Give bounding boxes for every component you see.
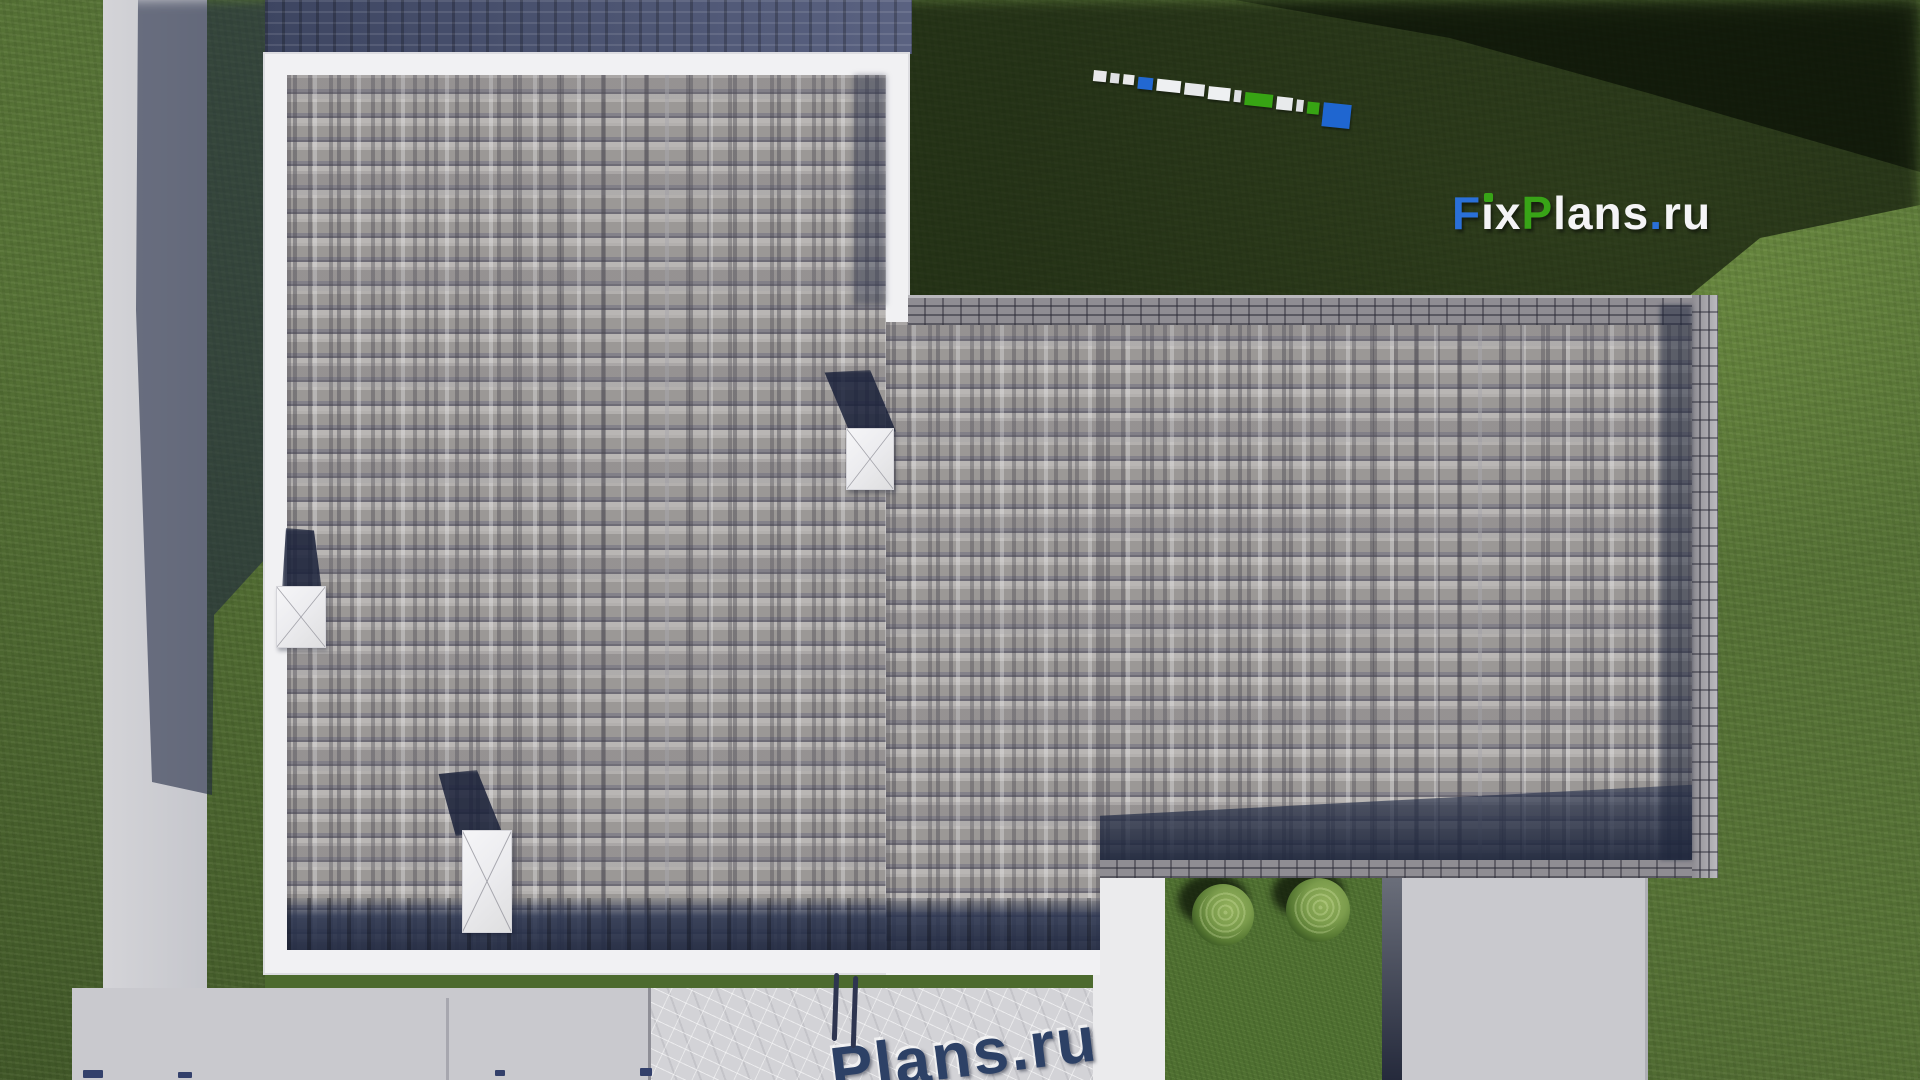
ruler-block (1244, 92, 1273, 108)
roof-valley-shadow (854, 75, 886, 305)
ruler-block (1156, 79, 1181, 93)
roof-shingles-left-section (287, 75, 886, 950)
ruler-block (1093, 70, 1107, 82)
logo-letter: F (1452, 186, 1481, 240)
logo-i-dot (1484, 193, 1493, 202)
chimney-cap (846, 428, 894, 490)
aerial-roof-render: FixPlans.ru Plans.ru (0, 0, 1920, 1080)
roof-eave-shadow-right (1100, 778, 1692, 862)
roof-eave-shadow-left (287, 898, 1100, 950)
bottom-cutoff-mark (83, 1070, 103, 1078)
ruler-block (1110, 73, 1120, 84)
roof-shingles-middle (886, 322, 1100, 950)
bush (1286, 878, 1350, 942)
ruler-block (1321, 102, 1351, 129)
driveway-concrete (72, 988, 648, 1080)
roof-edge-shadow (1660, 305, 1692, 860)
roof-shingles-right-section (1100, 322, 1692, 878)
shadow-seam-strip (1382, 878, 1402, 1080)
chimney-cap (276, 586, 326, 648)
logo-letter: s (1623, 186, 1650, 240)
bottom-cutoff-mark (640, 1068, 652, 1076)
logo-letter: r (1663, 186, 1682, 240)
ruler-block (1184, 83, 1205, 97)
logo-letter: P (1521, 186, 1553, 240)
ruler-block (1307, 102, 1320, 115)
roof-shaded-top-slope (265, 0, 912, 54)
bottom-cutoff-mark (495, 1070, 505, 1076)
ruler-block (1208, 86, 1231, 101)
ruler-block (1296, 99, 1304, 112)
logo-letter: a (1567, 186, 1594, 240)
logo-letter: l (1553, 186, 1567, 240)
bush (1192, 884, 1254, 946)
roof-brick-edge-right (1692, 295, 1718, 878)
right-concrete-pad (1402, 878, 1648, 1080)
logo-letter: n (1594, 186, 1623, 240)
logo-letter: x (1495, 186, 1522, 240)
ruler-block (1233, 90, 1241, 103)
logo-letter: . (1649, 186, 1663, 240)
grass-edge-strip (265, 975, 1093, 988)
ruler-block (1123, 74, 1135, 85)
roof-fascia-bottom-extension (886, 950, 1100, 975)
bright-walkway-strip (1093, 878, 1165, 1080)
bottom-cutoff-mark (178, 1072, 192, 1078)
ruler-block (1276, 96, 1293, 111)
ruler-block (1137, 77, 1153, 91)
roof-brick-eave (1100, 860, 1692, 878)
roof-ridge-band (908, 295, 1718, 325)
concrete-seam (446, 998, 449, 1080)
logo-letter: u (1682, 186, 1711, 240)
chimney-cap (462, 830, 512, 933)
